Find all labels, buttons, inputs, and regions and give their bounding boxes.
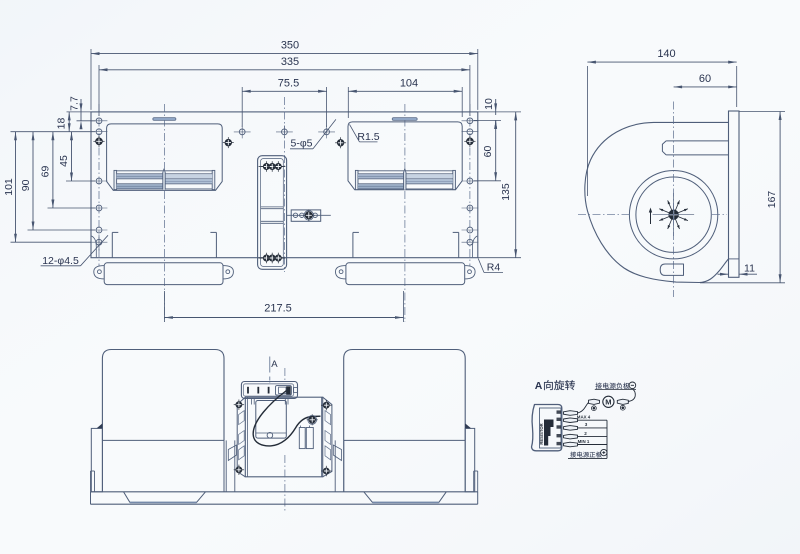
svg-text:45: 45: [58, 155, 70, 167]
svg-text:3: 3: [585, 422, 588, 427]
svg-text:69: 69: [40, 166, 52, 178]
svg-text:A: A: [535, 380, 543, 392]
svg-text:167: 167: [766, 191, 778, 209]
svg-text:60: 60: [699, 73, 711, 85]
svg-text:R1.5: R1.5: [357, 131, 379, 143]
svg-text:R4: R4: [487, 262, 501, 274]
svg-text:101: 101: [3, 178, 15, 196]
svg-text:90: 90: [20, 179, 32, 191]
svg-text:60: 60: [482, 146, 494, 158]
svg-text:75.5: 75.5: [278, 77, 299, 89]
svg-text:5-φ5: 5-φ5: [291, 138, 313, 150]
svg-text:140: 140: [657, 48, 675, 60]
svg-text:2: 2: [584, 431, 587, 436]
svg-text:MIN 1: MIN 1: [578, 439, 590, 444]
svg-text:217.5: 217.5: [264, 303, 292, 315]
svg-text:335: 335: [281, 56, 299, 68]
svg-text:104: 104: [400, 77, 418, 89]
svg-text:M: M: [605, 398, 611, 407]
svg-text:11: 11: [744, 263, 755, 275]
svg-text:18: 18: [56, 118, 68, 130]
svg-text:12-φ4.5: 12-φ4.5: [42, 255, 79, 267]
svg-text:350: 350: [281, 40, 299, 52]
svg-text:135: 135: [500, 183, 512, 201]
svg-text:10: 10: [483, 98, 495, 110]
svg-text:7.7: 7.7: [68, 96, 80, 111]
svg-text:RESISTOR: RESISTOR: [539, 423, 544, 444]
svg-text:MAX 4: MAX 4: [577, 415, 591, 420]
svg-text:A: A: [271, 359, 278, 370]
